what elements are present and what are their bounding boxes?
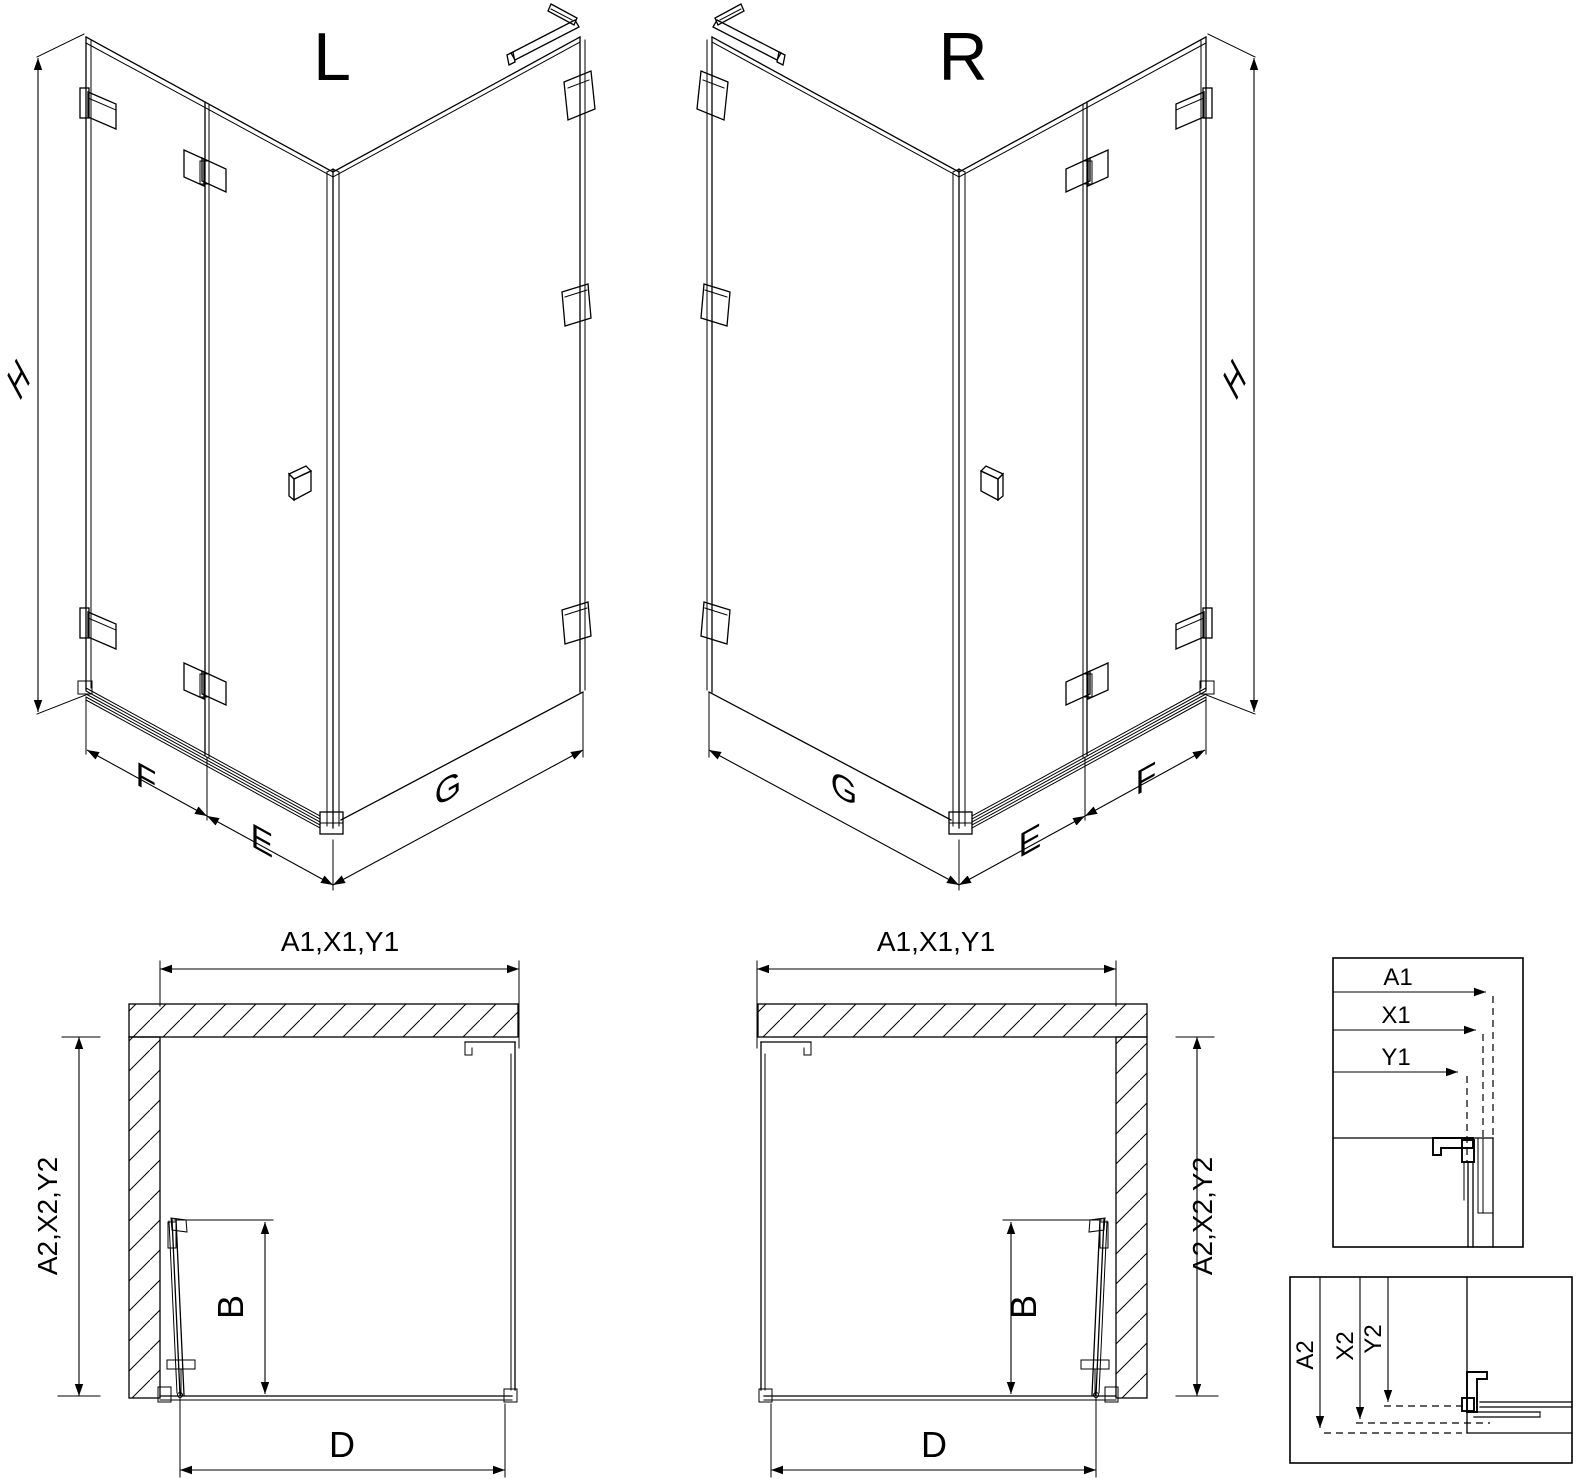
wall-hatch-side [129,1037,160,1398]
sheet-background [0,0,1581,1479]
detail-label-y2: Y2 [1360,1324,1387,1353]
dim-label-door-plan-r: B [1003,1295,1044,1319]
detail-label-a2: A2 [1292,1340,1319,1369]
wall-hatch-side [1116,1037,1147,1398]
detail-label-x1: X1 [1381,1002,1410,1029]
drawing-sheet: L H F E G R H G E F A1,X1,Y1 A2,X2,Y2 B … [0,0,1581,1479]
wall-hatch-top [758,1004,1147,1037]
dim-label-depth-plan-r: A2,X2,Y2 [1187,1157,1218,1275]
technical-drawing: L H F E G R H G E F A1,X1,Y1 A2,X2,Y2 B … [0,0,1581,1479]
detail-label-x2: X2 [1332,1331,1359,1360]
dim-label-entry-plan-l: D [329,1424,355,1465]
dim-label-entry-plan-r: D [921,1424,947,1465]
dim-label-width-plan-r: A1,X1,Y1 [877,926,995,957]
dim-label-depth-plan-l: A2,X2,Y2 [32,1157,63,1275]
dim-label-door-plan-l: B [210,1295,251,1319]
detail-label-y1: Y1 [1381,1044,1410,1071]
dim-label-width-plan-l: A1,X1,Y1 [281,926,399,957]
wall-hatch-top [129,1004,518,1037]
variant-label-l: L [313,19,351,95]
detail-label-a1: A1 [1383,964,1412,991]
variant-label-r: R [938,19,987,95]
